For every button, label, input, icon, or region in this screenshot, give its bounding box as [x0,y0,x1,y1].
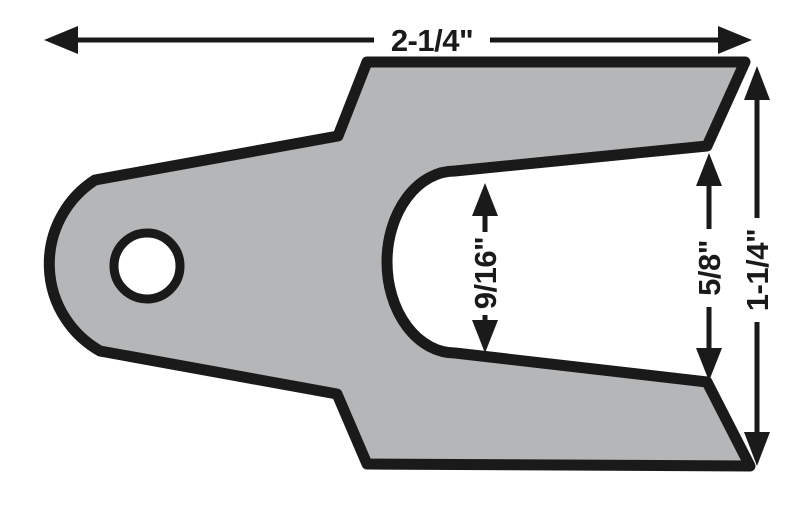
arrow-right-icon [718,26,752,54]
slot-width-label: 9/16" [468,237,503,310]
fork-opening-label: 5/8" [692,240,727,296]
arrow-down-icon [472,320,498,353]
shim-technical-drawing: 2-1/4" 1-1/4" 9/16" 5/8" [0,0,800,505]
arrow-left-icon [44,26,78,54]
arrow-up-icon [472,183,498,216]
arrow-up-icon [696,153,722,186]
mounting-hole [114,233,180,299]
overall-width-label: 2-1/4" [391,23,473,58]
arrow-up-icon [744,66,770,100]
drawing-canvas: 2-1/4" 1-1/4" 9/16" 5/8" [0,0,800,505]
overall-height-label: 1-1/4" [740,229,775,311]
